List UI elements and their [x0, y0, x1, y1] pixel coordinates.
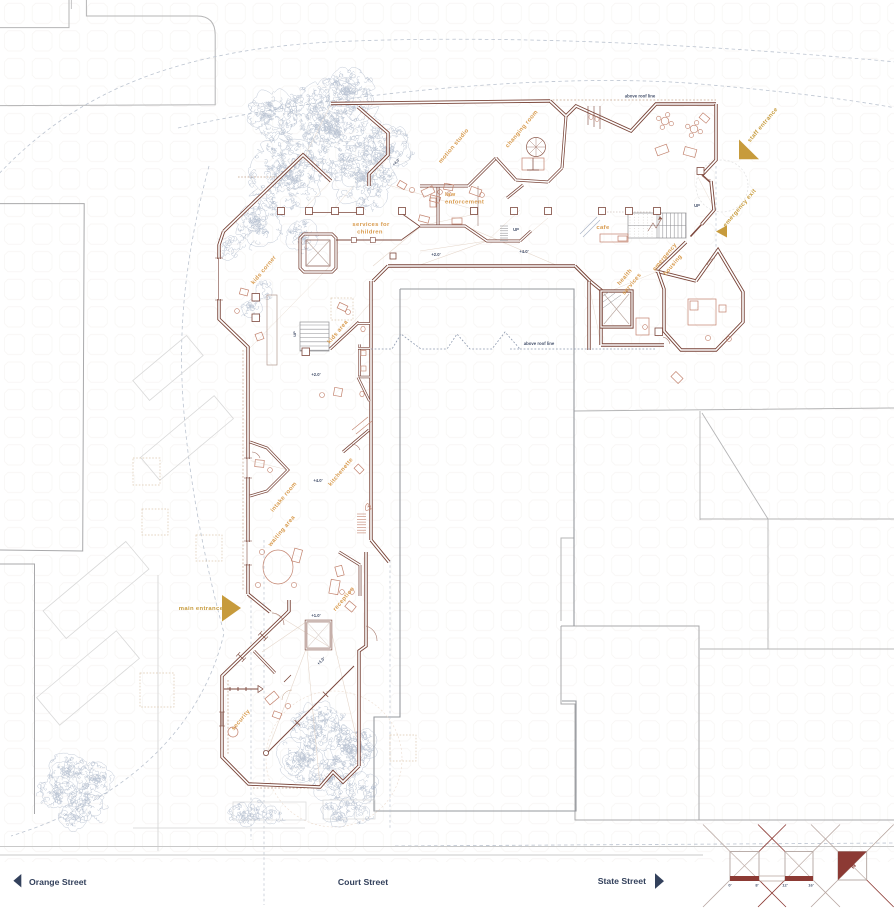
- svg-text:Orange Street: Orange Street: [29, 877, 87, 887]
- svg-text:law: law: [445, 192, 456, 198]
- svg-text:UP: UP: [513, 227, 519, 232]
- svg-text:main entrance: main entrance: [179, 606, 224, 612]
- svg-text:12': 12': [782, 883, 787, 888]
- svg-text:+4.0': +4.0': [313, 478, 322, 483]
- svg-text:children: children: [357, 230, 383, 236]
- svg-text:enforcement: enforcement: [445, 200, 484, 206]
- svg-text:Court Street: Court Street: [338, 877, 388, 887]
- svg-text:services for: services for: [352, 222, 390, 228]
- svg-text:UP: UP: [292, 331, 297, 337]
- svg-text:UP: UP: [694, 203, 700, 208]
- svg-text:8': 8': [755, 883, 758, 888]
- svg-text:16': 16': [808, 883, 813, 888]
- svg-text:+2.0': +2.0': [311, 372, 320, 377]
- svg-text:0': 0': [728, 883, 731, 888]
- svg-text:+4.0': +4.0': [519, 249, 528, 254]
- svg-text:State Street: State Street: [598, 876, 646, 886]
- svg-text:above roof line: above roof line: [625, 94, 656, 99]
- svg-text:cafe: cafe: [596, 225, 610, 231]
- svg-text:above roof line: above roof line: [524, 341, 555, 346]
- svg-text:+1.0': +1.0': [311, 613, 320, 618]
- svg-text:+2.0': +2.0': [431, 252, 440, 257]
